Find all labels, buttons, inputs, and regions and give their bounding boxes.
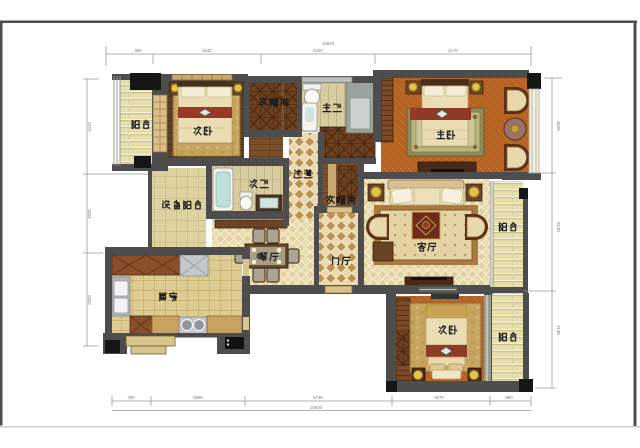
svg-text:5730: 5730 [313, 395, 323, 400]
svg-text:4170: 4170 [448, 48, 458, 53]
svg-text:2980: 2980 [193, 395, 203, 400]
svg-text:15920: 15920 [310, 405, 323, 410]
svg-text:8120: 8120 [556, 222, 561, 232]
svg-text:750: 750 [127, 395, 135, 400]
svg-text:350: 350 [134, 48, 142, 53]
svg-text:2520: 2520 [87, 209, 92, 219]
svg-text:15920: 15920 [322, 41, 335, 46]
svg-text:3113: 3113 [87, 122, 92, 132]
svg-text:3570: 3570 [434, 395, 444, 400]
svg-text:2920: 2920 [87, 295, 92, 305]
svg-text:3620: 3620 [556, 121, 561, 131]
svg-text:3440: 3440 [202, 48, 212, 53]
svg-text:4320: 4320 [313, 48, 323, 53]
svg-text:3190: 3190 [556, 325, 561, 335]
svg-text:900: 900 [505, 395, 513, 400]
